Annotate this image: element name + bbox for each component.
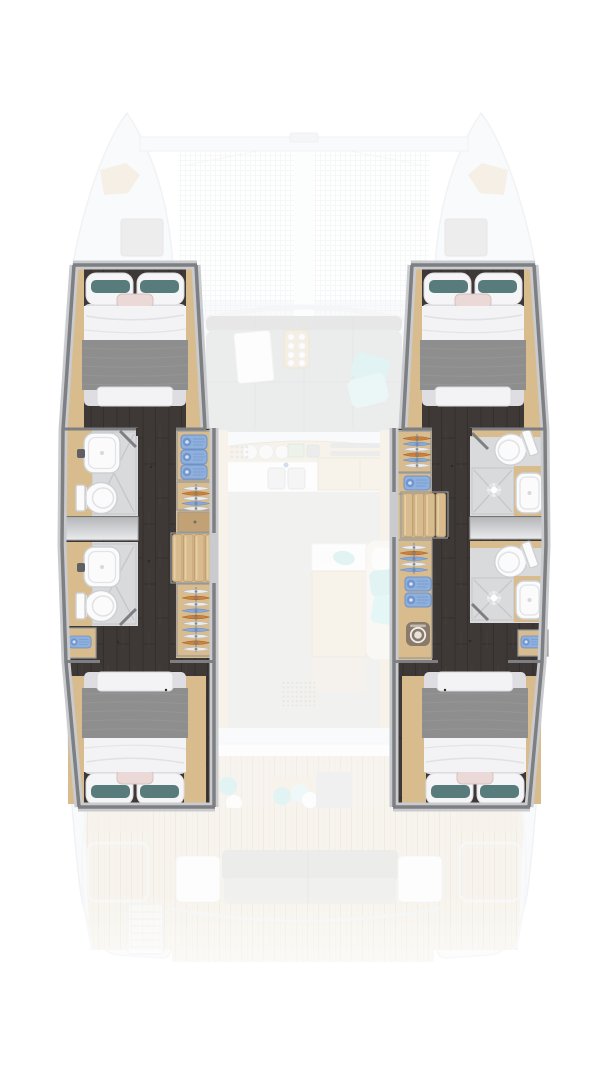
- galley-sink: [288, 468, 305, 489]
- stern-fade: [0, 892, 608, 1080]
- folded-towel: [405, 593, 431, 607]
- cabin-aft-starboard: [402, 672, 541, 805]
- deck-hatch-port: [121, 219, 163, 256]
- step: [184, 535, 194, 582]
- step: [195, 535, 205, 582]
- step: [173, 535, 183, 582]
- shower-room-forward-port: [66, 430, 138, 516]
- shower-room-forward-starboard: [470, 426, 546, 516]
- port-hull-interior: [62, 265, 216, 807]
- shower-room-aft-port: [66, 542, 138, 626]
- dinette-table: [312, 571, 366, 657]
- folded-towel: [69, 636, 91, 648]
- step: [425, 494, 435, 537]
- drain: [528, 491, 532, 495]
- drain: [528, 598, 532, 602]
- floor-plan-canvas: [0, 0, 608, 1080]
- transom-top-port: [90, 808, 150, 832]
- cabinet-handle: [194, 521, 197, 524]
- shower-light: [487, 591, 501, 605]
- herb-box: [288, 444, 304, 457]
- galley-switch: [307, 445, 319, 457]
- serving-tray: [284, 330, 309, 368]
- shower-light: [487, 483, 501, 497]
- saloon-table: [234, 331, 274, 384]
- door-mark: [136, 428, 139, 436]
- toilet: [76, 483, 117, 514]
- washbasin: [84, 547, 120, 587]
- galley-faucet: [284, 463, 289, 468]
- vent-grill: [330, 443, 388, 448]
- folded-towel: [404, 476, 430, 490]
- faucet: [77, 449, 85, 458]
- trampoline-center-strip: [294, 152, 314, 320]
- step: [414, 494, 424, 537]
- folded-towel: [181, 435, 207, 449]
- washer-icon: [406, 622, 430, 646]
- step: [436, 494, 446, 537]
- galley-sink: [268, 468, 285, 489]
- starboard-hull-interior: [393, 265, 548, 807]
- hanging-locker-starboard: [395, 540, 432, 658]
- door-mark: [505, 659, 508, 667]
- towel-cabinet-port: [66, 628, 96, 658]
- wardrobe-column-port: [171, 430, 216, 658]
- door-mark: [100, 659, 103, 667]
- cabin-aft-port: [68, 672, 206, 805]
- door-mark: [469, 428, 472, 436]
- folded-towel: [181, 450, 207, 464]
- hanging-locker-port: [177, 584, 214, 656]
- speaker-grille: [281, 682, 317, 706]
- shower-room-aft-starboard: [470, 538, 546, 623]
- sliding-door: [210, 744, 398, 757]
- companionway-steps-port: [171, 533, 216, 583]
- vent-grill: [330, 451, 388, 456]
- faucet: [77, 563, 85, 572]
- washbasin: [84, 433, 120, 473]
- companionway-steps-starboard: [401, 492, 448, 538]
- hull-window-starboard: [470, 517, 542, 539]
- transom-top-starboard: [458, 808, 518, 832]
- toilet: [76, 591, 117, 622]
- deck-hatch-starboard: [445, 219, 487, 256]
- step: [403, 494, 413, 537]
- hull-window-port: [66, 517, 138, 540]
- folded-towel: [405, 577, 431, 591]
- crossbeam-fitting: [290, 133, 318, 142]
- floor-plan: [0, 0, 608, 1080]
- folded-towel: [181, 465, 207, 479]
- galley: [206, 441, 402, 492]
